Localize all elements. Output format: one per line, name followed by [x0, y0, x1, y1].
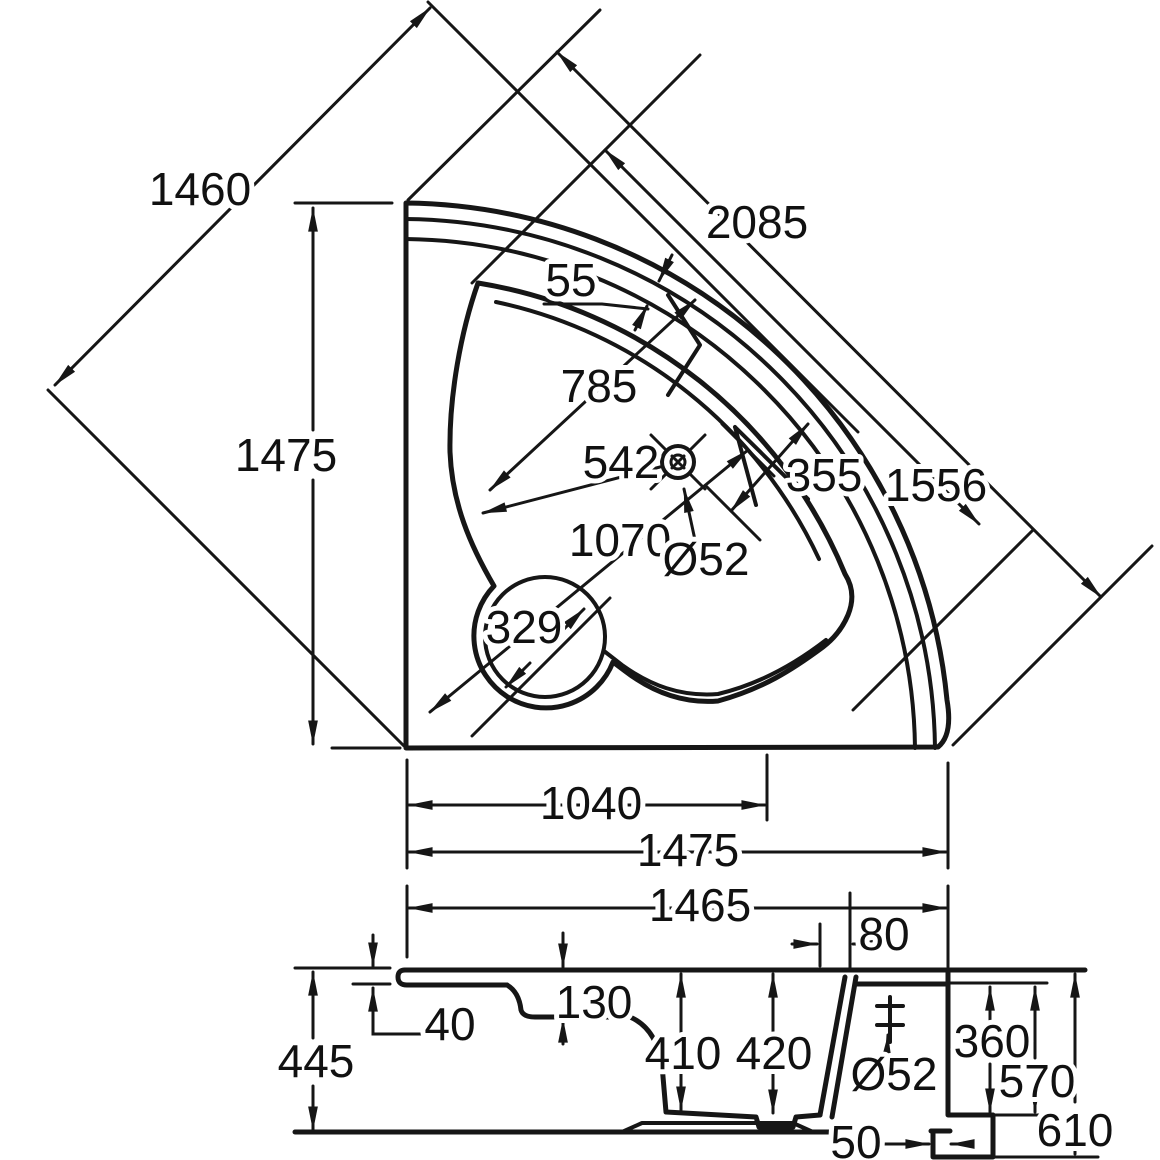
label-well-length: 1070: [569, 514, 671, 566]
label-well-width: 785: [561, 360, 638, 412]
label-foot-inset: 50: [830, 1116, 881, 1160]
label-rim-thickness: 40: [424, 998, 475, 1050]
label-left-side: 1475: [235, 429, 337, 481]
label-rim-edge: 55: [545, 254, 596, 306]
label-overall-height: 445: [278, 1035, 355, 1087]
label-drain-diameter: Ø52: [663, 533, 750, 585]
technical-drawing-page: 1460 1475 2085 55 785 542 1556 355 1070 …: [0, 0, 1160, 1160]
label-seat-diameter: 329: [486, 601, 563, 653]
label-depth-rear: 420: [736, 1027, 813, 1079]
label-section-drain: Ø52: [851, 1048, 938, 1100]
label-skirt-height: 610: [1037, 1104, 1114, 1156]
extension-lines-plan: [48, 2, 1152, 868]
section-overflow-hole: [877, 997, 903, 1042]
label-step-height: 570: [999, 1055, 1076, 1107]
bathtub-dimension-drawing: 1460 1475 2085 55 785 542 1556 355 1070 …: [0, 0, 1160, 1160]
label-drain-offset: 1040: [540, 777, 642, 829]
label-diagonal-width: 1460: [149, 163, 251, 215]
label-drain-distance: 542: [583, 436, 660, 488]
label-rim-step: 130: [556, 976, 633, 1028]
label-inner-diagonal: 1556: [885, 459, 987, 511]
label-overall-width: 1465: [649, 879, 751, 931]
label-depth-front: 410: [645, 1027, 722, 1079]
label-overall-diagonal: 2085: [706, 196, 808, 248]
plan-view: 1460 1475 2085 55 785 542 1556 355 1070 …: [48, 2, 1152, 876]
label-rim-inset: 355: [786, 449, 863, 501]
label-rear-deck: 80: [858, 908, 909, 960]
label-bottom-side: 1475: [637, 824, 739, 876]
section-view: 1465 40 445 130 410 420 80 Ø52 360 570 6…: [278, 879, 1114, 1160]
